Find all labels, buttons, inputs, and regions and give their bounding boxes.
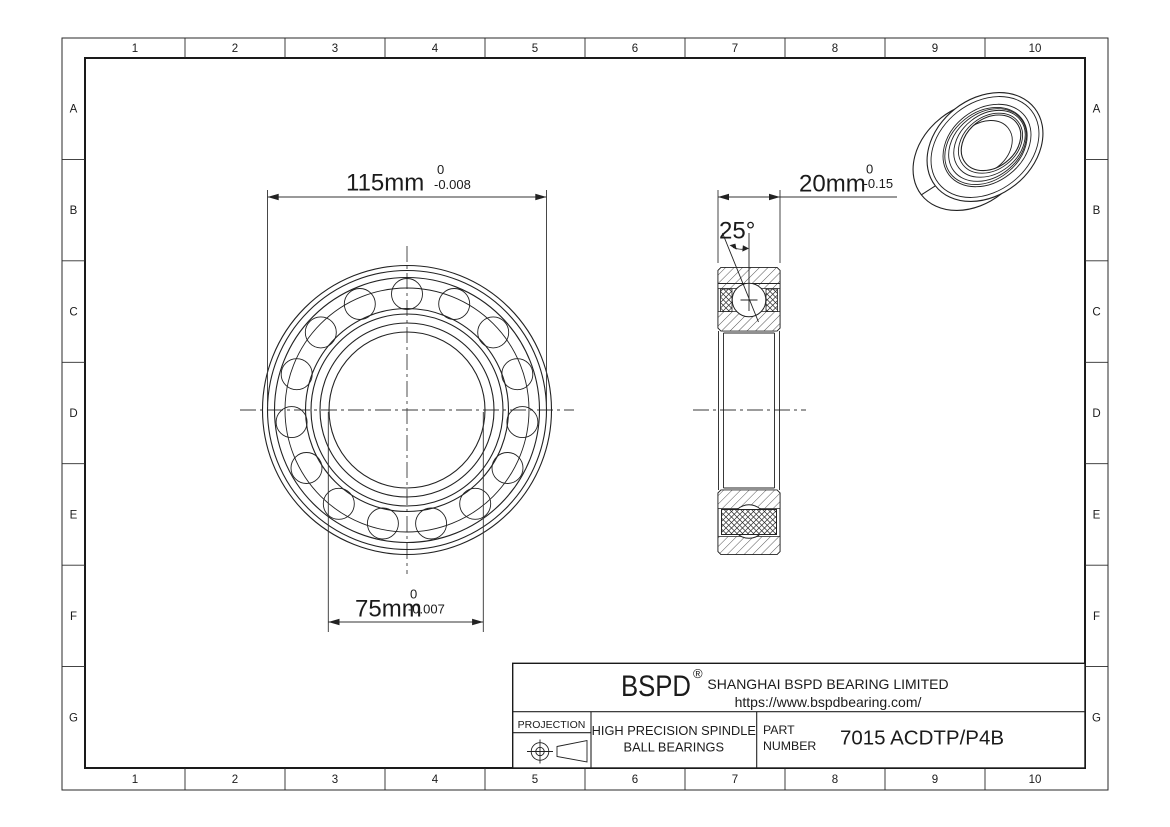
cage-ball-pocket <box>367 508 398 539</box>
dim-width-tol-upper: 0 <box>866 162 873 177</box>
bore-silhouette <box>719 331 780 490</box>
product-title-line1: HIGH PRECISION SPINDLE <box>592 723 756 738</box>
cage-ball-pocket <box>507 407 538 438</box>
drawing-page: 1122334455667788991010AABBCCDDEEFFGG 115… <box>0 0 1170 827</box>
grid-row-label: C <box>1092 307 1100 319</box>
cage-ball-pocket <box>416 508 447 539</box>
grid-row-label: F <box>70 611 77 623</box>
cage-section-right <box>766 289 778 312</box>
grid-row-label: E <box>70 509 78 521</box>
cage-ball-pocket <box>478 317 509 348</box>
dim-bore-tol-lower: -0.007 <box>408 602 445 617</box>
grid-row-label: D <box>1092 408 1100 420</box>
front-view: 115mm 0 -0.008 75mm 0 -0.007 <box>240 162 574 632</box>
cage-ball-pocket <box>281 359 312 390</box>
grid-column-label: 10 <box>1029 774 1042 786</box>
grid-row-label: G <box>69 712 78 724</box>
grid-row-label: D <box>69 408 77 420</box>
grid-row-label: B <box>70 205 78 217</box>
section-top-half <box>718 233 780 331</box>
dimension-bore-diameter: 75mm 0 -0.007 <box>328 412 483 632</box>
dimension-contact-angle: 25° <box>719 218 755 252</box>
grid-column-label: 8 <box>832 774 838 786</box>
grid-column-label: 5 <box>532 43 538 55</box>
registered-trademark-icon: ® <box>693 666 703 681</box>
grid-column-label: 3 <box>332 43 338 55</box>
isometric-view <box>891 70 1064 233</box>
part-number-label-line1: PART <box>763 723 795 737</box>
product-title-line2: BALL BEARINGS <box>624 740 725 755</box>
engineering-drawing: 1122334455667788991010AABBCCDDEEFFGG 115… <box>0 0 1170 827</box>
dim-od-tol-lower: -0.008 <box>434 177 471 192</box>
grid-column-label: 2 <box>232 774 238 786</box>
grid-column-label: 5 <box>532 774 538 786</box>
company-website: https://www.bspdbearing.com/ <box>735 694 922 710</box>
grid-column-label: 4 <box>432 43 439 55</box>
cage-ball-pocket <box>460 488 491 519</box>
grid-column-label: 1 <box>132 43 138 55</box>
grid-column-label: 9 <box>932 43 938 55</box>
part-number-label-line2: NUMBER <box>763 739 816 753</box>
cage-ball-pocket <box>305 317 336 348</box>
company-logo: BSPD <box>621 670 691 703</box>
dim-od-value: 115mm <box>346 170 424 197</box>
grid-column-label: 4 <box>432 774 439 786</box>
grid-column-label: 9 <box>932 774 938 786</box>
grid-row-label: A <box>70 104 78 116</box>
grid-row-label: F <box>1093 611 1100 623</box>
grid-column-label: 8 <box>832 43 838 55</box>
dim-width-tol-lower: -0.15 <box>864 176 894 191</box>
dim-bore-tol-upper: 0 <box>410 587 417 602</box>
section-bottom-half <box>718 490 780 555</box>
company-name: SHANGHAI BSPD BEARING LIMITED <box>707 676 948 692</box>
cage-section-left <box>721 289 733 312</box>
grid-column-label: 1 <box>132 774 138 786</box>
grid-column-label: 7 <box>732 774 738 786</box>
dim-width-value: 20mm <box>799 171 866 198</box>
grid-row-label: G <box>1092 712 1101 724</box>
grid-column-label: 6 <box>632 774 638 786</box>
projection-label: PROJECTION <box>518 719 586 731</box>
dim-angle-value: 25° <box>719 218 755 245</box>
grid-column-label: 2 <box>232 43 238 55</box>
section-view: 20mm 0 -0.15 25° <box>693 162 897 555</box>
grid-column-label: 6 <box>632 43 638 55</box>
grid-column-label: 7 <box>732 43 738 55</box>
grid-row-label: A <box>1093 104 1101 116</box>
grid-row-label: B <box>1093 205 1101 217</box>
title-block: BSPD ® SHANGHAI BSPD BEARING LIMITED htt… <box>513 663 1085 768</box>
cage-ball-pocket <box>276 407 307 438</box>
dim-od-tol-upper: 0 <box>437 162 444 177</box>
grid-column-label: 10 <box>1029 43 1042 55</box>
cage-ball-pocket <box>502 359 533 390</box>
part-number-value: 7015 ACDTP/P4B <box>840 727 1004 750</box>
grid-row-label: E <box>1093 509 1101 521</box>
grid-row-label: C <box>69 307 77 319</box>
cage-section-bottom <box>722 510 777 535</box>
grid-column-label: 3 <box>332 774 338 786</box>
